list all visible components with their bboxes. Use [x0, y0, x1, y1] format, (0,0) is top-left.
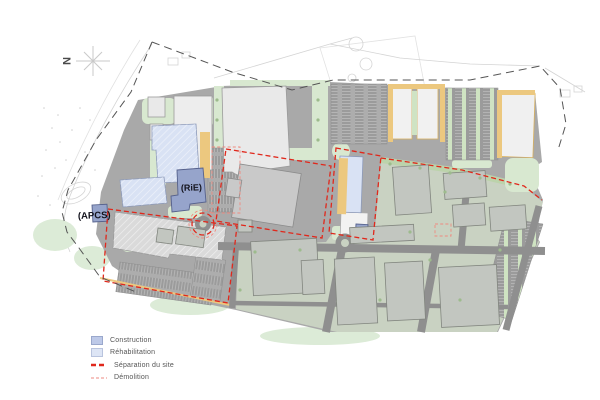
site-plan-svg: N (RiE) (APCS): [0, 0, 600, 400]
compass-star-icon: [76, 46, 110, 76]
rie-label: (RiE): [181, 182, 202, 193]
demolition-line-icon: [91, 375, 107, 381]
legend-label: Construction: [110, 337, 152, 344]
site-plan-canvas: N (RiE) (APCS) Construction Réhabilitati…: [0, 0, 600, 400]
legend-label: Réhabilitation: [110, 349, 155, 356]
rehabilitation-swatch-icon: [91, 348, 103, 357]
legend-item-construction: Construction: [91, 336, 174, 344]
north-label: N: [60, 57, 72, 65]
legend-label: Séparation du site: [114, 362, 174, 369]
separation-line-icon: [91, 362, 107, 368]
legend-item-separation: Séparation du site: [91, 361, 174, 369]
legend: Construction Réhabilitation Séparation d…: [91, 336, 174, 382]
construction-swatch-icon: [91, 336, 103, 345]
legend-item-demolition: Démolition: [91, 374, 174, 382]
legend-label: Démolition: [114, 374, 149, 381]
legend-item-rehabilitation: Réhabilitation: [91, 349, 174, 357]
north-arrow: N: [60, 46, 110, 76]
apcs-label: (APCS): [78, 210, 111, 222]
